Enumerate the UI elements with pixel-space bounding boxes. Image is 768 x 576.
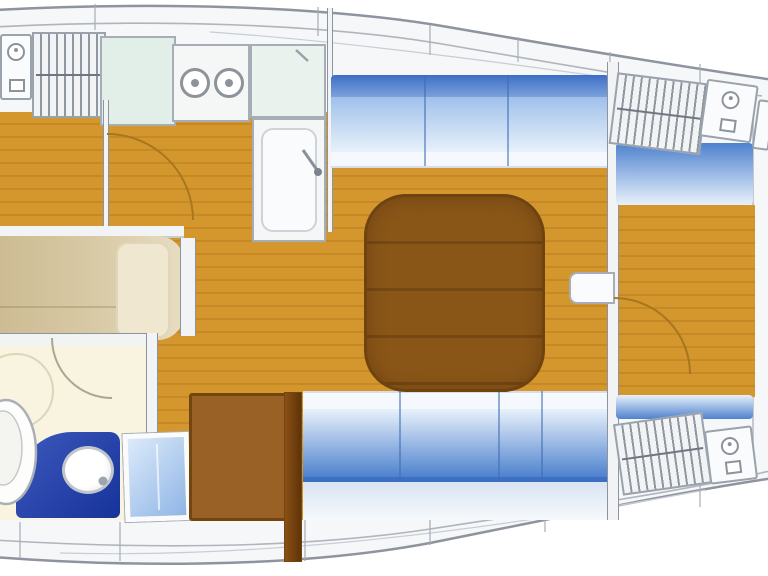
aft-cabin-door-wall bbox=[103, 100, 109, 230]
head-side-wall bbox=[146, 333, 158, 433]
berth-side-wall bbox=[180, 238, 196, 336]
cushion-divider bbox=[507, 75, 509, 166]
panel-divider bbox=[156, 444, 160, 510]
settee-cushion bbox=[331, 97, 609, 152]
settee-front-edge bbox=[331, 152, 609, 168]
floor-plan-canvas bbox=[0, 0, 768, 576]
sink-bowl bbox=[261, 128, 317, 232]
galley-basin-cabinet bbox=[0, 34, 32, 100]
stove-burner-icon bbox=[214, 68, 244, 98]
cushion-divider bbox=[541, 391, 543, 482]
basin-icon bbox=[7, 43, 25, 61]
galley-counter bbox=[100, 36, 176, 126]
forward-storage-locker-bottom bbox=[613, 412, 712, 496]
forward-basin-cabinet-top bbox=[699, 79, 759, 144]
basin-faucet-dot bbox=[14, 48, 18, 52]
round-sink bbox=[62, 446, 114, 494]
galley-sink-unit bbox=[252, 118, 326, 242]
saloon-table bbox=[364, 194, 545, 392]
locker-shelf-line bbox=[36, 74, 102, 76]
locker-shelf-line bbox=[617, 107, 701, 119]
basin-base bbox=[725, 460, 742, 475]
basin-base bbox=[719, 118, 737, 133]
aft-cabin-berth bbox=[0, 226, 184, 340]
companionway-rail bbox=[284, 392, 302, 562]
basin-base bbox=[9, 79, 25, 92]
stove-burner-icon bbox=[180, 68, 210, 98]
cushion-divider bbox=[424, 75, 426, 166]
settee-backrest bbox=[303, 482, 609, 520]
galley-sink-top bbox=[250, 44, 326, 118]
locker-shelf-line bbox=[622, 447, 703, 460]
forward-cabin-floor bbox=[614, 205, 755, 397]
forward-basin-cabinet-bottom bbox=[704, 425, 758, 484]
settee-front-edge bbox=[303, 391, 609, 411]
settee-cushion bbox=[303, 409, 609, 477]
companionway-steps bbox=[189, 393, 289, 521]
port-settee bbox=[331, 75, 609, 166]
berth-pillow bbox=[116, 242, 170, 338]
cushion-divider bbox=[498, 391, 500, 482]
starboard-settee bbox=[303, 391, 609, 520]
settee-backrest bbox=[331, 75, 609, 97]
wet-locker-panel bbox=[122, 432, 191, 522]
bulkhead-step-box bbox=[569, 272, 615, 304]
galley-storage-locker bbox=[32, 32, 106, 118]
two-burner-stove bbox=[172, 44, 250, 122]
cushion-divider bbox=[399, 391, 401, 482]
forward-storage-locker-top bbox=[609, 72, 709, 155]
